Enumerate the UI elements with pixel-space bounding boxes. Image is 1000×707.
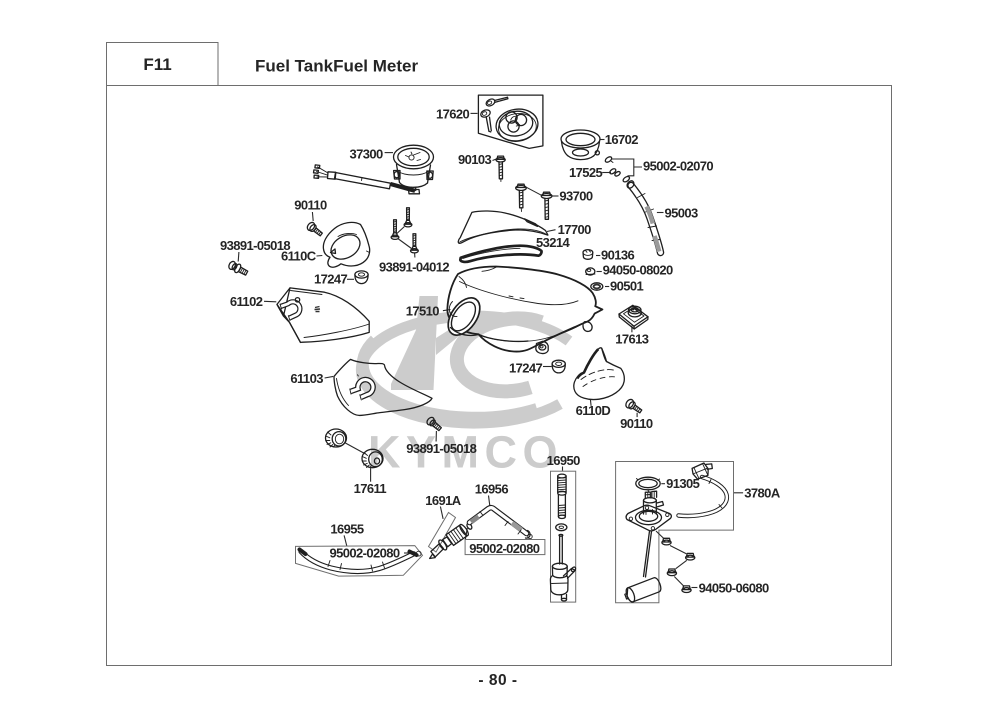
svg-text:93891-05018: 93891-05018 bbox=[220, 238, 290, 253]
svg-text:6110C: 6110C bbox=[281, 249, 317, 264]
svg-text:17611: 17611 bbox=[354, 481, 387, 496]
svg-text:95002-02080: 95002-02080 bbox=[469, 541, 539, 556]
svg-text:61103: 61103 bbox=[290, 371, 323, 386]
svg-text:16956: 16956 bbox=[475, 482, 509, 497]
svg-text:17247: 17247 bbox=[314, 272, 348, 287]
svg-text:93891-05018: 93891-05018 bbox=[406, 441, 476, 456]
svg-text:90136: 90136 bbox=[601, 247, 635, 262]
svg-text:17510: 17510 bbox=[406, 304, 440, 319]
svg-text:90110: 90110 bbox=[620, 416, 653, 431]
svg-text:90110: 90110 bbox=[294, 198, 327, 213]
svg-text:94050-06080: 94050-06080 bbox=[699, 581, 769, 596]
svg-text:93891-04012: 93891-04012 bbox=[379, 259, 449, 274]
svg-text:91305: 91305 bbox=[666, 476, 700, 491]
svg-text:1691A: 1691A bbox=[425, 493, 462, 508]
svg-text:61102: 61102 bbox=[230, 294, 263, 309]
svg-text:17247: 17247 bbox=[509, 361, 543, 376]
svg-text:Fuel TankFuel Meter: Fuel TankFuel Meter bbox=[255, 57, 418, 76]
svg-text:3780A: 3780A bbox=[744, 486, 781, 501]
svg-text:16702: 16702 bbox=[605, 132, 639, 147]
svg-text:F11: F11 bbox=[143, 55, 171, 74]
svg-text:16950: 16950 bbox=[547, 453, 581, 468]
svg-text:95002-02070: 95002-02070 bbox=[643, 159, 713, 174]
svg-text:17525: 17525 bbox=[569, 165, 603, 180]
svg-text:- 80 -: - 80 - bbox=[478, 672, 517, 689]
svg-text:53214: 53214 bbox=[536, 235, 571, 250]
svg-text:6110D: 6110D bbox=[576, 403, 611, 418]
svg-text:17620: 17620 bbox=[436, 107, 470, 122]
svg-text:93700: 93700 bbox=[559, 188, 593, 203]
svg-text:95003: 95003 bbox=[665, 206, 699, 221]
svg-text:16955: 16955 bbox=[330, 521, 364, 536]
svg-text:95002-02080: 95002-02080 bbox=[330, 545, 400, 560]
svg-text:37300: 37300 bbox=[350, 147, 384, 162]
svg-text:17613: 17613 bbox=[615, 332, 649, 347]
svg-text:90103: 90103 bbox=[458, 152, 492, 167]
svg-text:90501: 90501 bbox=[610, 278, 644, 293]
svg-text:94050-08020: 94050-08020 bbox=[603, 262, 673, 277]
